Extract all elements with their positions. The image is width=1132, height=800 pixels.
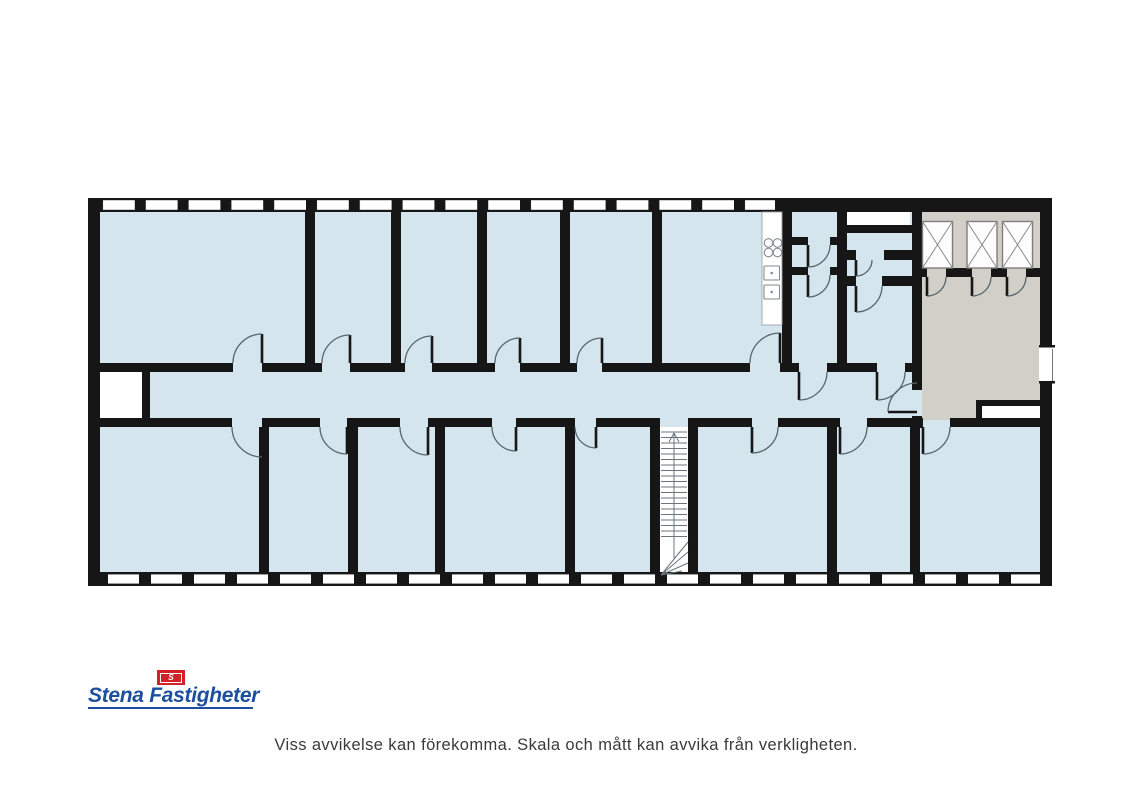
logo-underline <box>88 707 253 709</box>
elevators <box>923 222 1033 269</box>
window-band-bottom <box>88 572 1052 586</box>
entrance-recess <box>982 406 1040 420</box>
window-band-top <box>88 198 775 212</box>
elevator-symbol-icon <box>1003 222 1033 269</box>
disclaimer-text: Viss avvikelse kan förekomma. Skala och … <box>0 736 1132 755</box>
corridor-closet <box>100 372 142 418</box>
elevator-symbol-icon <box>923 222 953 269</box>
elevator-symbol-icon <box>967 222 997 269</box>
service-shaft <box>847 212 910 225</box>
logo-flag-icon: S <box>157 670 185 685</box>
floor-plan-page: S Stena Fastigheter Viss avvikelse kan f… <box>0 0 1132 800</box>
logo-flag-letter: S <box>168 673 174 682</box>
stena-fastigheter-logo: S Stena Fastigheter <box>88 668 268 714</box>
kitchen-fixtures <box>762 212 782 325</box>
right-wall-window <box>1039 345 1055 384</box>
logo-brand-text: Stena Fastigheter <box>88 684 259 708</box>
